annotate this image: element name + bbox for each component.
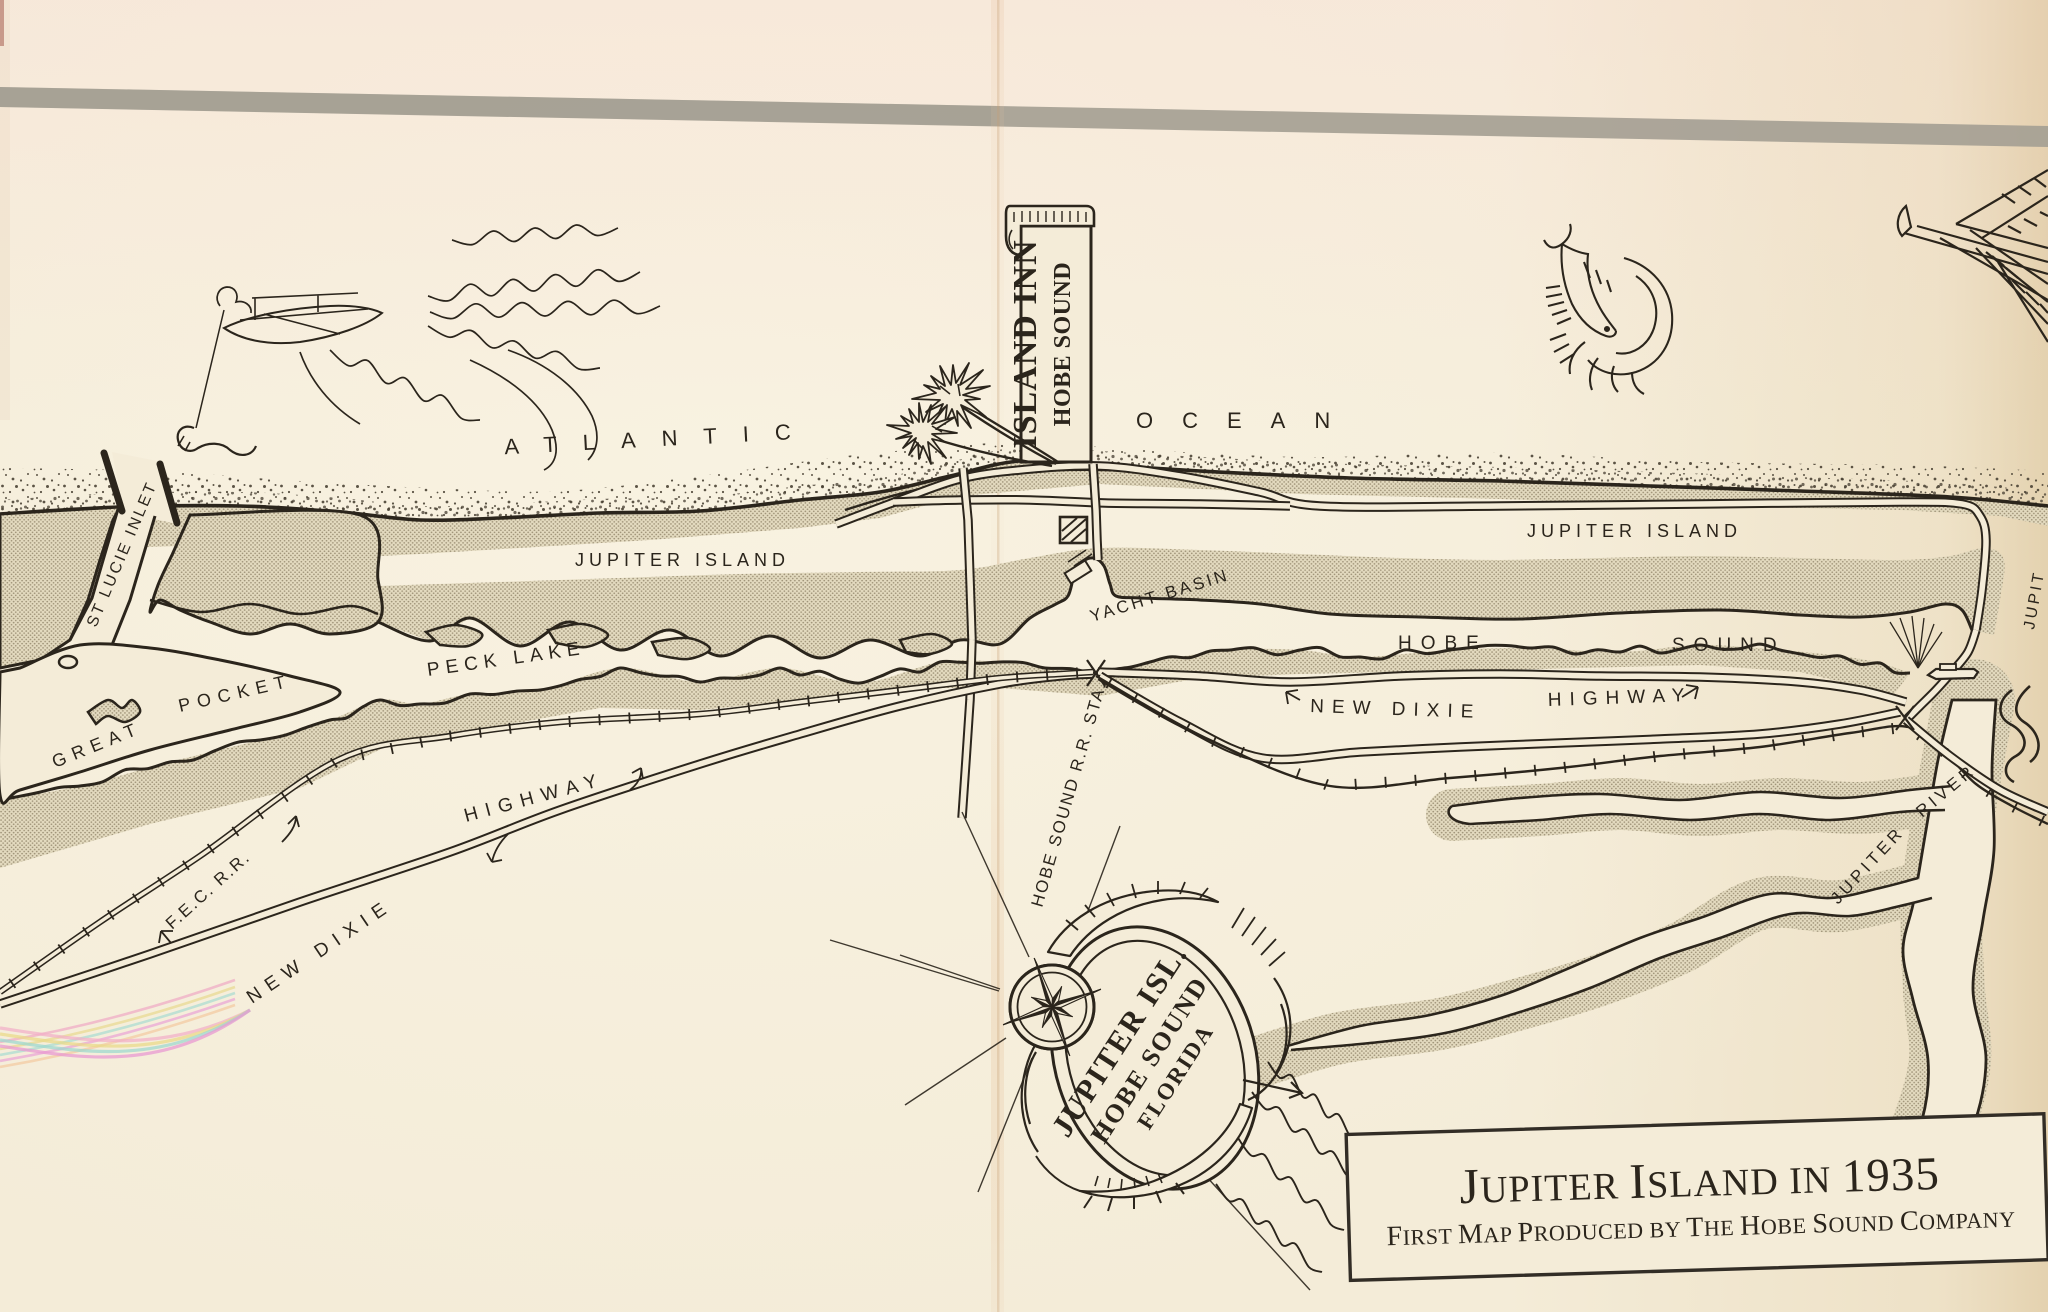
- svg-text:OCEAN: OCEAN: [1136, 408, 1359, 433]
- svg-text:JUPITER ISLAND: JUPITER ISLAND: [1527, 521, 1742, 541]
- svg-text:SOUND: SOUND: [1672, 635, 1786, 656]
- svg-text:HOBE SOUND: HOBE SOUND: [1050, 262, 1076, 426]
- svg-text:HOBE: HOBE: [1398, 633, 1488, 654]
- svg-text:ISLAND INN: ISLAND INN: [1007, 239, 1044, 448]
- svg-text:JUPITER ISLAND: JUPITER ISLAND: [575, 550, 790, 570]
